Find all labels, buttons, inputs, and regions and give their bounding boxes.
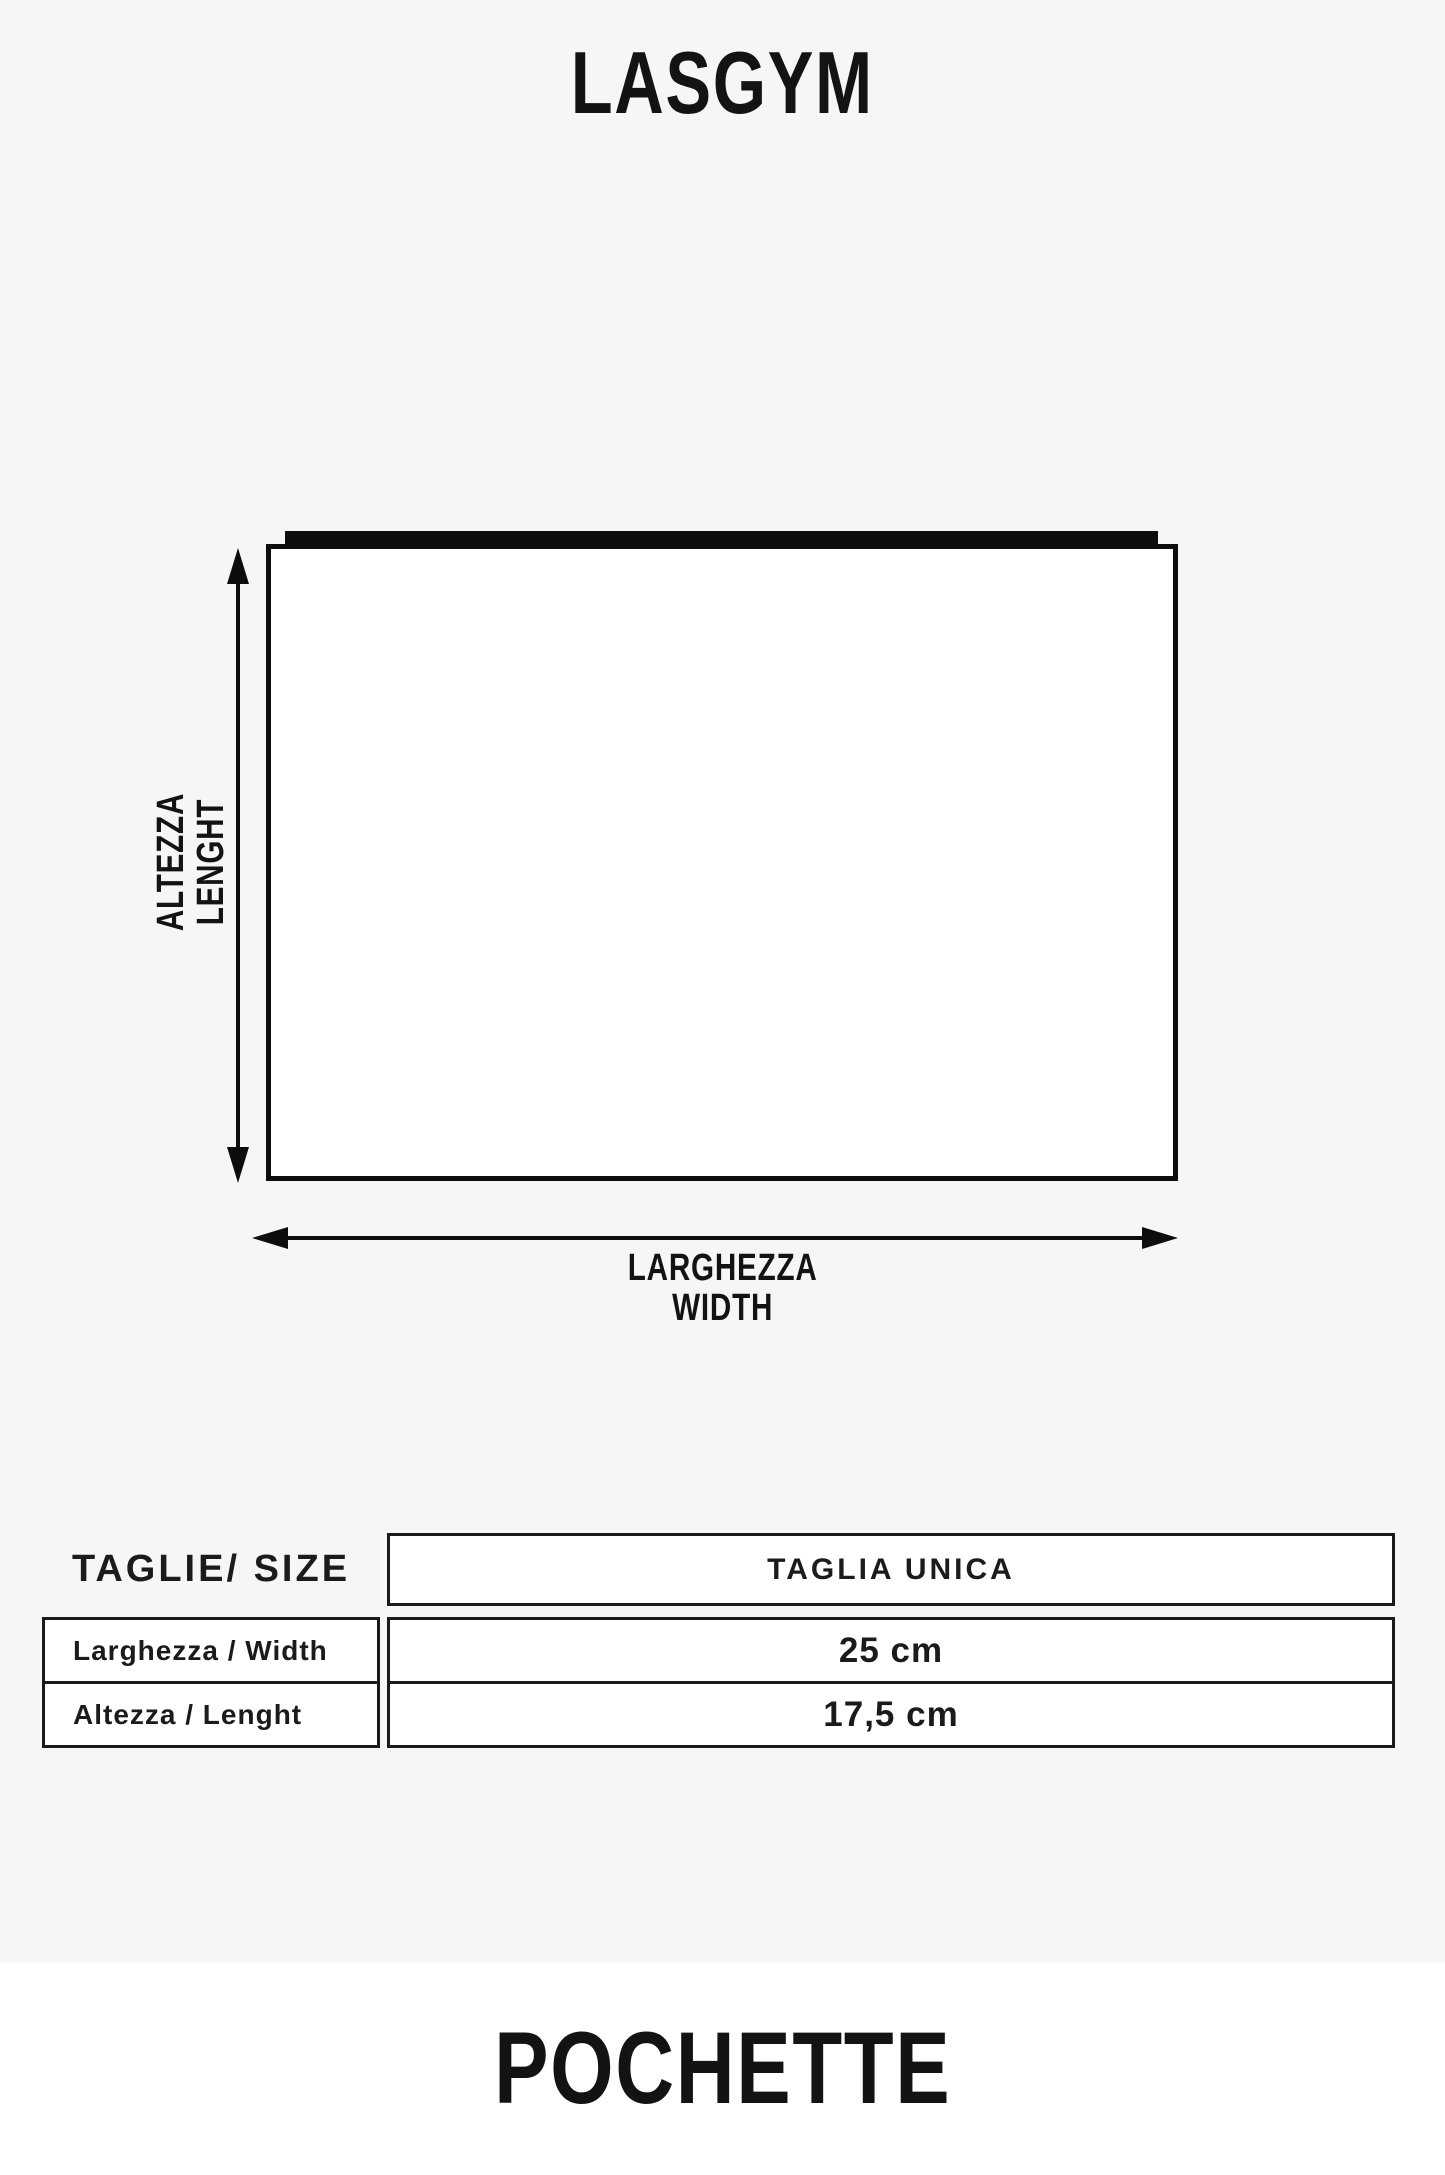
height-label-line1: ALTEZZA bbox=[151, 793, 191, 931]
brand-title-row: LASGYM bbox=[0, 36, 1445, 130]
height-label-line2: LENGHT bbox=[191, 793, 231, 931]
size-table-value-column: 25 cm 17,5 cm bbox=[387, 1617, 1395, 1748]
row-value-width: 25 cm bbox=[390, 1620, 1392, 1684]
row-label-height: Altezza / Lenght bbox=[45, 1684, 377, 1745]
row-value-height: 17,5 cm bbox=[390, 1684, 1392, 1745]
product-title: POCHETTE bbox=[494, 2010, 951, 2127]
pochette-outline bbox=[266, 544, 1178, 1181]
pochette-top-bar bbox=[285, 531, 1158, 544]
size-guide-page: LASGYM ALTEZZA LENGHT LARGHEZZA WIDTH TA… bbox=[0, 0, 1445, 2175]
width-dimension-label: LARGHEZZA WIDTH bbox=[0, 1248, 1445, 1328]
footer-band: POCHETTE bbox=[0, 1962, 1445, 2175]
brand-title: LASGYM bbox=[571, 32, 874, 134]
height-dimension-label: ALTEZZA LENGHT bbox=[151, 793, 231, 931]
size-table-corner-label: TAGLIE/ SIZE bbox=[42, 1533, 380, 1606]
row-label-width: Larghezza / Width bbox=[45, 1620, 377, 1684]
width-label-line1: LARGHEZZA bbox=[628, 1248, 818, 1288]
width-label-line2: WIDTH bbox=[628, 1288, 818, 1328]
size-table-header-cell: TAGLIA UNICA bbox=[387, 1533, 1395, 1606]
size-table-label-column: Larghezza / Width Altezza / Lenght bbox=[42, 1617, 380, 1748]
